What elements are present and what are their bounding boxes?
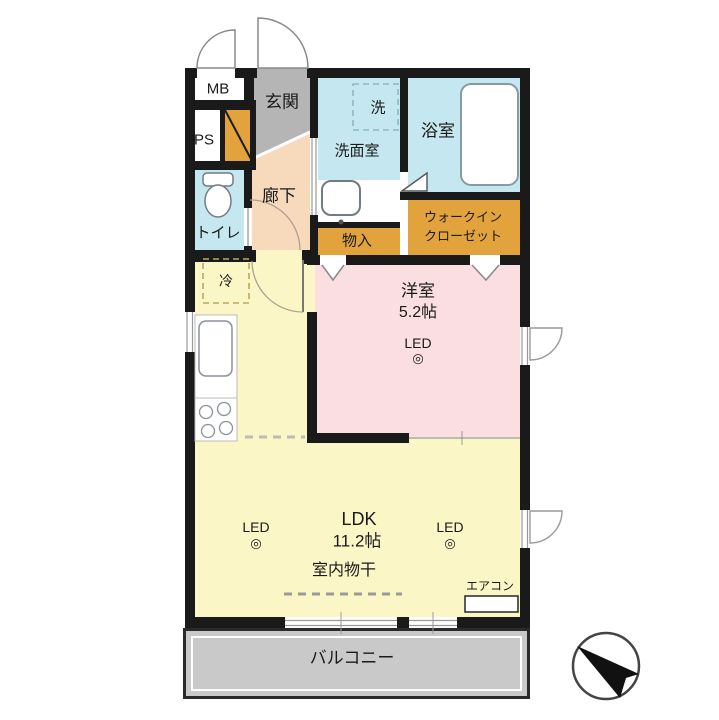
label-toilet: トイレ <box>195 226 240 241</box>
label-ldk: LDK <box>341 510 376 528</box>
toilet-door-swing <box>250 200 300 250</box>
label-washer: 洗 <box>370 101 385 116</box>
label-indoor-drying: 室内物干 <box>312 563 376 579</box>
balcony-door-opening-left <box>285 617 397 628</box>
label-bathroom: 浴室 <box>421 123 455 140</box>
wall-ps-bottom <box>185 161 256 170</box>
north-arrow-circle <box>573 633 639 699</box>
label-entrance: 玄関 <box>265 94 299 111</box>
wall-ps-divider <box>220 110 225 162</box>
label-led-bedroom: LED <box>404 336 431 350</box>
wall-bedroom-bottom <box>307 433 409 443</box>
wall-balcony-mullion <box>397 617 409 628</box>
shoe-cabinet <box>225 110 252 161</box>
wall-washroom-left-upper <box>310 68 318 138</box>
ldk-window-opening <box>520 510 530 548</box>
ceiling-light-icon: ◎ <box>444 537 455 550</box>
label-balcony: バルコニー <box>310 650 395 667</box>
wall-storage-top <box>318 222 400 228</box>
mb-door-swing <box>197 30 235 68</box>
wall-kitchen-bedroom <box>307 312 317 443</box>
ldk-window-swing <box>530 511 562 543</box>
wall-kitchen-row-left <box>185 250 256 262</box>
label-aircon: エアコン <box>466 580 514 592</box>
vanity-area <box>318 180 400 224</box>
label-wic-line2: クローゼット <box>424 230 502 243</box>
entrance-door-swing <box>258 18 308 68</box>
wall-bathroom-bottom <box>400 192 530 200</box>
label-led-ldk-left: LED <box>242 520 269 534</box>
label-hallway: 廊下 <box>262 188 296 205</box>
bedroom-window-opening <box>520 327 530 365</box>
wall-toilet-hall-upper <box>244 170 252 208</box>
label-washroom: 洗面室 <box>334 144 379 159</box>
wall-bathroom-left <box>400 68 408 172</box>
ceiling-light-icon: ◎ <box>250 537 261 550</box>
storage-door-opening <box>320 255 346 265</box>
toilet-door-opening <box>244 208 252 246</box>
wall-top <box>185 68 530 78</box>
north-arrow-icon <box>577 646 639 698</box>
washroom-door-opening <box>310 138 318 215</box>
mb-door-opening <box>197 68 235 78</box>
label-bedroom: 洋室 <box>401 283 435 300</box>
floor-plan: MB PS 玄関 廊下 トイレ 洗 洗面室 浴室 物入 ウォークイン クローゼッ… <box>0 0 719 720</box>
wall-entrance-left <box>250 100 256 162</box>
bedroom-window-swing <box>530 328 562 360</box>
ceiling-light-icon: ◎ <box>412 352 423 365</box>
label-bedroom-size: 5.2帖 <box>399 305 437 321</box>
wall-mb-bottom <box>190 100 252 110</box>
label-mb: MB <box>207 82 230 97</box>
entrance-door-opening <box>257 68 307 78</box>
balcony-door-opening-right <box>409 617 457 628</box>
label-ldk-size: 11.2帖 <box>333 533 382 550</box>
kitchen-doorway-floor <box>256 250 302 264</box>
label-ps: PS <box>194 133 214 148</box>
label-led-ldk-right: LED <box>436 520 463 534</box>
label-fridge: 冷 <box>219 274 233 288</box>
label-storage: 物入 <box>342 234 372 249</box>
label-wic-line1: ウォークイン <box>424 211 502 224</box>
washroom-floor <box>318 76 400 182</box>
left-window-opening <box>185 312 195 352</box>
bathroom-door-opening <box>400 172 408 192</box>
wic-door-opening <box>470 255 500 265</box>
